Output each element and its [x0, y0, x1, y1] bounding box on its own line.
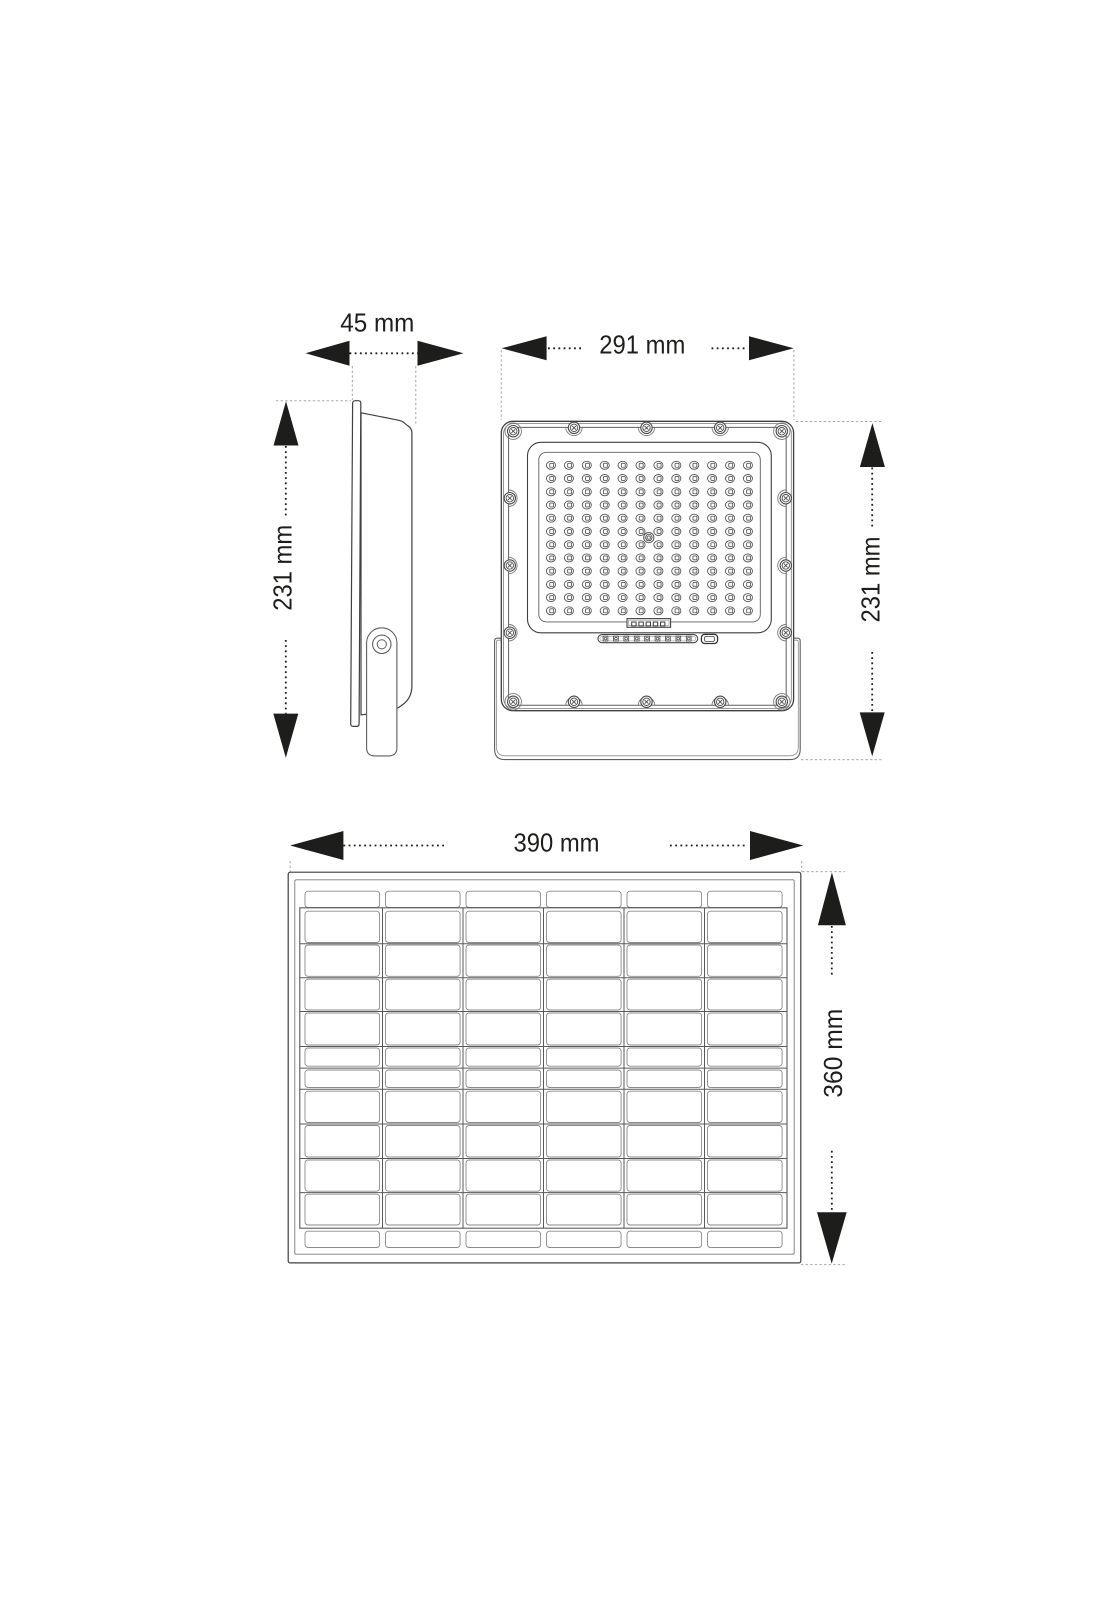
svg-text:231 mm: 231 mm — [856, 537, 886, 623]
svg-text:390 mm: 390 mm — [514, 827, 600, 857]
svg-text:231 mm: 231 mm — [267, 525, 297, 611]
svg-text:45 mm: 45 mm — [340, 308, 414, 338]
svg-text:360 mm: 360 mm — [818, 1009, 848, 1098]
svg-text:291 mm: 291 mm — [599, 329, 685, 359]
